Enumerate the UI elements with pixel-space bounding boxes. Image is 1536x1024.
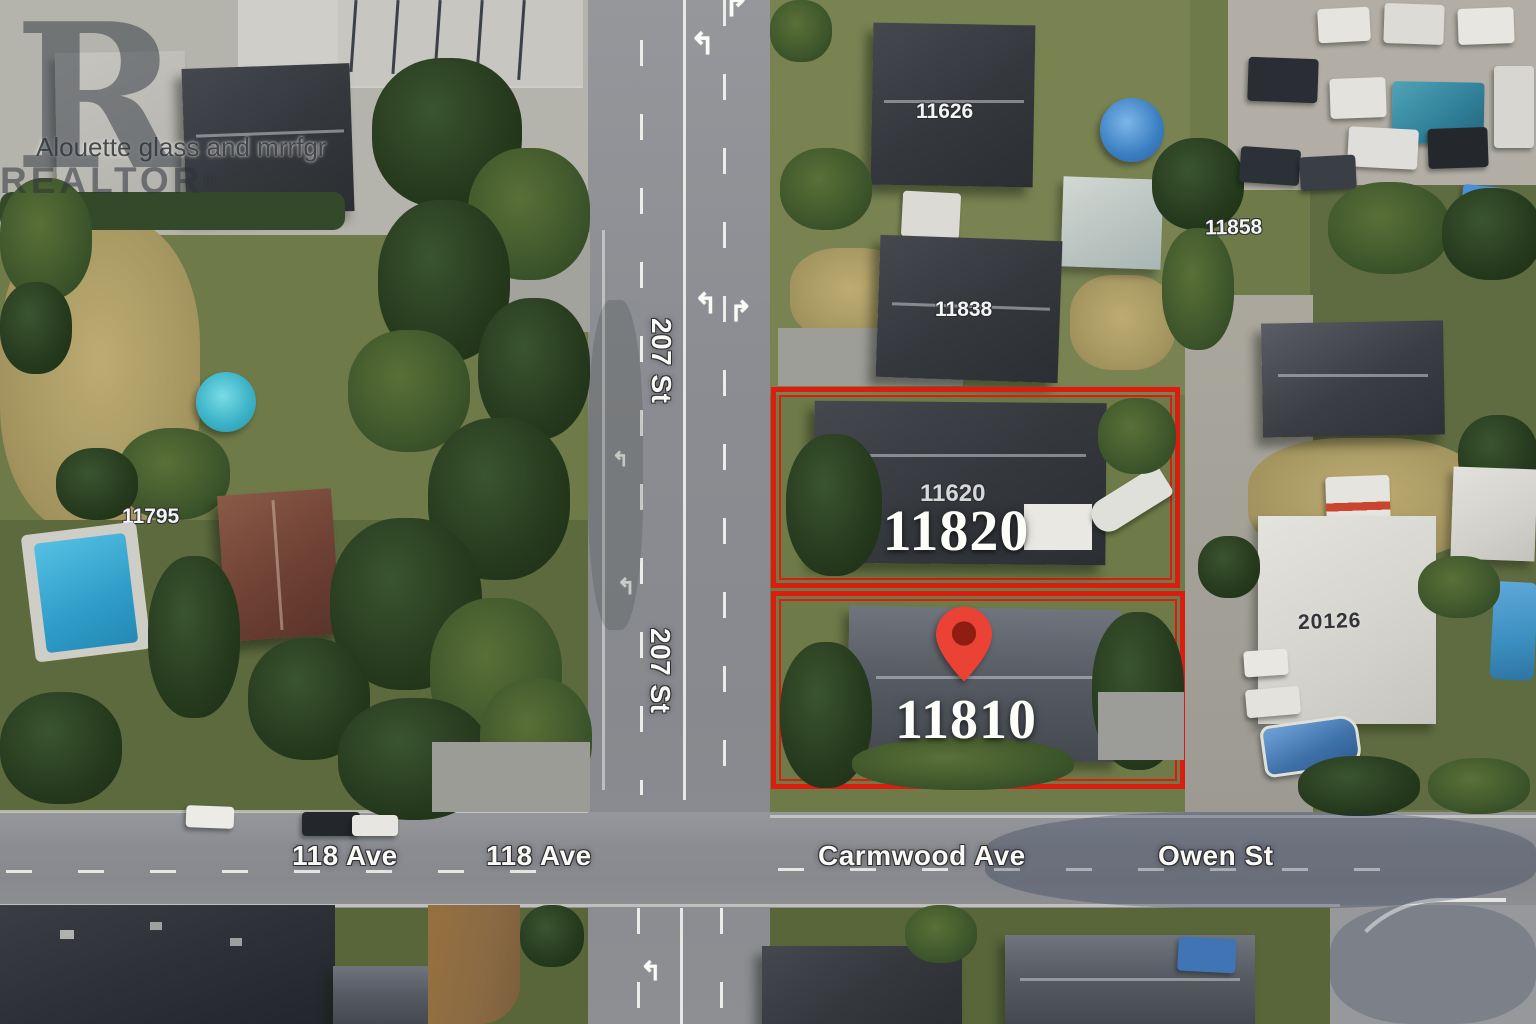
lane-car-white: [1243, 648, 1289, 677]
turn-arrow-icon: ↰: [640, 958, 662, 984]
lane-line-solid: [683, 0, 686, 800]
lot-vehicle: [1347, 126, 1419, 170]
lane-car-white: [1245, 686, 1301, 719]
lane-dashes-right-south: [720, 908, 723, 1024]
parcel-outline-11820[interactable]: 11620 11820: [771, 387, 1180, 588]
dry-ne-2: [1070, 275, 1175, 370]
dirt-path-s: [428, 905, 520, 1024]
tree: [1328, 182, 1450, 274]
dark-building-sw: [0, 905, 335, 1024]
roof-speck: [230, 938, 242, 946]
roof-ridge: [1278, 374, 1428, 377]
roof-speck: [60, 930, 74, 939]
house-number-label: 11838: [935, 298, 992, 322]
turn-arrow-icon: ↱: [724, 0, 749, 22]
street-label-118-ave-2: 118 Ave: [486, 840, 592, 872]
street-label-carmwood-ave: Carmwood Ave: [818, 840, 1026, 872]
tree: [905, 905, 977, 963]
house-number-label-dark: 20126: [1298, 609, 1362, 635]
roof-ridge: [834, 454, 1086, 457]
realtor-logo-r: R: [14, 18, 180, 178]
lot-vehicle: [1494, 66, 1534, 148]
turn-arrow-icon: ↱: [729, 298, 752, 326]
tree: [0, 282, 72, 374]
teal-pool-cover: [196, 372, 256, 432]
street-label-118-ave-1: 118 Ave: [292, 840, 398, 872]
lot-vehicle-dark: [1427, 127, 1488, 169]
driveway-sw: [432, 742, 590, 812]
lot-vehicle: [1457, 7, 1514, 45]
parked-car-white: [186, 805, 235, 829]
lot-vehicle: [1329, 77, 1386, 119]
greenhouse-roof: [1060, 176, 1163, 269]
street-label-207-st-south: 207 St: [644, 628, 676, 714]
parcel-number-11810: 11810: [841, 688, 1091, 752]
tree: [1162, 228, 1234, 350]
driveway-11810: [1098, 692, 1184, 760]
tree: [780, 148, 872, 230]
street-label-207-st-north: 207 St: [645, 318, 677, 404]
tree: [1442, 188, 1536, 280]
lane-dashes-right: [723, 0, 726, 795]
house-number-label: 11858: [1205, 216, 1263, 241]
lot-vehicle: [1317, 7, 1371, 44]
lot-vehicle-dark: [1239, 146, 1301, 186]
tree: [520, 905, 584, 967]
roof-ridge: [1020, 978, 1240, 981]
swimming-pool: [34, 533, 139, 653]
house-number-label: 11626: [916, 100, 973, 124]
house-roof-11858: [1261, 320, 1445, 437]
pin-core: [952, 621, 976, 645]
blue-tarp-s: [1177, 937, 1237, 974]
street-label-owen-st: Owen St: [1158, 840, 1274, 872]
lot-vehicle: [1383, 3, 1444, 45]
tree: [1428, 758, 1530, 814]
tree: [148, 556, 240, 718]
tree: [770, 0, 832, 62]
realtor-wordmark: REALTOR®: [0, 160, 221, 202]
white-van: [901, 191, 961, 240]
tree: [1298, 756, 1420, 816]
tree-shadow-road: [588, 300, 643, 630]
location-pin-icon[interactable]: [936, 606, 992, 682]
turn-arrow-icon: ↰: [694, 290, 717, 318]
turn-arrow-icon: ↰: [690, 30, 715, 60]
tree: [1418, 556, 1500, 618]
lot-vehicle-dark: [1247, 57, 1318, 103]
tree: [1098, 398, 1176, 474]
gable-roof-s: [333, 966, 433, 1024]
tree: [0, 692, 122, 804]
parked-truck-white: [352, 815, 398, 836]
lot-vehicle-dark: [1299, 155, 1357, 192]
realtor-text: REALTOR: [0, 160, 203, 201]
aerial-map: ↱ ↰ ↰ ↱ ↰ ↰ ↰ 11795 11626 11838: [0, 0, 1536, 1024]
registered-mark: ®: [203, 171, 220, 191]
tree: [1198, 536, 1260, 598]
shed-roof-right: [1450, 467, 1536, 562]
lane-line-solid-south: [680, 908, 683, 1024]
parcel-number-11820: 11820: [831, 497, 1081, 564]
roof-speck: [150, 922, 162, 930]
shadow-se: [1330, 905, 1536, 1024]
blue-pool-dome: [1100, 98, 1164, 162]
